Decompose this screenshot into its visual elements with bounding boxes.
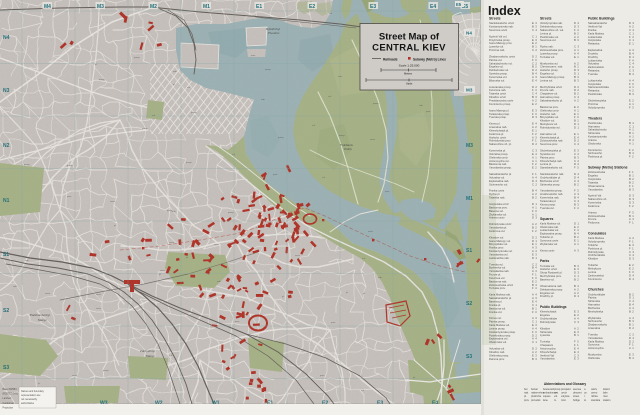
svg-text:Turivska prov.: Turivska prov. — [489, 286, 506, 290]
svg-text:B 1: B 1 — [532, 306, 537, 310]
svg-text:Sichnevoho: Sichnevoho — [588, 319, 603, 323]
svg-text:B 2: B 2 — [532, 196, 537, 200]
svg-text:E 3: E 3 — [574, 310, 579, 314]
svg-text:Mezhyhirska: Mezhyhirska — [588, 309, 604, 313]
svg-text:Stanislavskoho vul.: Stanislavskoho vul. — [540, 166, 563, 170]
svg-text:D 2: D 2 — [629, 339, 634, 343]
svg-text:Meters: Meters — [404, 72, 413, 76]
svg-text:F 1: F 1 — [629, 246, 634, 250]
svg-text:E 2: E 2 — [574, 313, 579, 317]
svg-text:E 1: E 1 — [532, 242, 537, 246]
svg-text:Naberezhne sh.: Naberezhne sh. — [588, 197, 607, 201]
svg-text:E 2: E 2 — [629, 263, 634, 267]
svg-text:Subway (Metro) Lines: Subway (Metro) Lines — [413, 58, 446, 62]
svg-text:Biloruska vul.: Biloruska vul. — [489, 78, 505, 82]
svg-text:F 3: F 3 — [532, 209, 537, 213]
svg-text:F 3: F 3 — [532, 58, 537, 62]
svg-text:m.: m. — [554, 399, 557, 402]
svg-text:A 2: A 2 — [574, 291, 579, 295]
svg-text:Kirova uzviz: Kirova uzviz — [540, 248, 555, 252]
svg-text:Olehivska prosp.: Olehivska prosp. — [489, 353, 509, 357]
svg-text:F 1: F 1 — [629, 221, 634, 225]
svg-text:Yaroslavska pl.: Yaroslavska pl. — [489, 226, 507, 230]
svg-text:nab.: nab. — [524, 392, 529, 395]
svg-text:Pushkinska: Pushkinska — [588, 92, 602, 96]
svg-text:Kostiantynivska nab.: Kostiantynivska nab. — [489, 25, 514, 29]
svg-text:C 3: C 3 — [629, 250, 634, 254]
svg-text:F 1: F 1 — [532, 139, 537, 143]
svg-text:Kikvidze nab.: Kikvidze nab. — [489, 350, 505, 354]
svg-text:Prorizna nab.: Prorizna nab. — [489, 48, 505, 52]
svg-text:A 3: A 3 — [629, 48, 634, 52]
svg-text:Rohnidynska: Rohnidynska — [588, 250, 604, 254]
svg-text:square: square — [543, 395, 551, 398]
svg-text:A 3: A 3 — [574, 248, 579, 252]
svg-text:A 1: A 1 — [629, 128, 634, 132]
svg-text:Yaroslavska prosp.: Yaroslavska prosp. — [489, 166, 512, 170]
svg-text:E 3: E 3 — [574, 357, 579, 361]
svg-text:Shchekavytska pl.: Shchekavytska pl. — [540, 149, 562, 153]
svg-text:Projection: Projection — [3, 406, 14, 409]
svg-text:D 2: D 2 — [629, 326, 634, 330]
svg-text:prospekt: prospekt — [561, 388, 571, 391]
svg-text:Patrisa prov.: Patrisa prov. — [540, 155, 555, 159]
svg-text:A 1: A 1 — [629, 141, 634, 145]
svg-text:Ivana Mazepy prov.: Ivana Mazepy prov. — [489, 41, 513, 45]
svg-text:richka: richka — [591, 395, 598, 398]
svg-text:D 3: D 3 — [532, 216, 537, 220]
svg-text:Dehtiarivska prosp.: Dehtiarivska prosp. — [540, 287, 563, 291]
svg-text:Staronavodnitska: Staronavodnitska — [588, 85, 609, 89]
svg-text:A 2: A 2 — [532, 192, 537, 196]
svg-text:Lysenka vul.: Lysenka vul. — [489, 45, 504, 49]
svg-text:D 3: D 3 — [629, 21, 634, 25]
svg-text:C 2: C 2 — [574, 152, 579, 156]
svg-text:street: street — [573, 395, 580, 398]
svg-text:Horkoho prosp.: Horkoho prosp. — [540, 68, 559, 72]
svg-text:E 2: E 2 — [532, 279, 537, 283]
svg-text:D 3: D 3 — [574, 68, 579, 72]
svg-text:A 1: A 1 — [532, 159, 537, 163]
svg-text:Antonovycha: Antonovycha — [540, 347, 556, 351]
svg-text:C 4: C 4 — [532, 92, 537, 96]
svg-text:Franka uzviz: Franka uzviz — [489, 189, 505, 193]
svg-text:Syretska vul.: Syretska vul. — [540, 152, 556, 156]
svg-text:A 4: A 4 — [629, 217, 634, 221]
svg-text:C 4: C 4 — [574, 95, 579, 99]
svg-text:D 4: D 4 — [574, 176, 579, 180]
svg-text:D 3: D 3 — [629, 194, 634, 198]
svg-text:C 4: C 4 — [629, 28, 634, 32]
svg-text:B 2: B 2 — [574, 31, 579, 35]
svg-text:E 4: E 4 — [532, 21, 537, 25]
svg-text:Subway (Metro) Stations: Subway (Metro) Stations — [588, 166, 628, 170]
svg-text:not necessarily: not necessarily — [21, 398, 38, 401]
svg-text:Ordzhonikidze: Ordzhonikidze — [588, 253, 606, 257]
svg-text:E 3: E 3 — [629, 243, 634, 247]
svg-text:Public Buildings: Public Buildings — [540, 305, 567, 309]
svg-text:Predslavynska uzviz: Predslavynska uzviz — [489, 99, 514, 103]
svg-text:A 2: A 2 — [629, 25, 634, 29]
svg-text:Turivska vul.: Turivska vul. — [540, 264, 555, 268]
svg-text:Olehivska uzviz: Olehivska uzviz — [540, 108, 559, 112]
svg-text:Ivana Mazepy vul.: Ivana Mazepy vul. — [489, 239, 511, 243]
svg-text:Dehtiarivska prosp.: Dehtiarivska prosp. — [540, 25, 563, 29]
svg-text:Khreshchatyk: Khreshchatyk — [540, 310, 557, 314]
svg-text:Instytutska: Instytutska — [588, 82, 601, 86]
svg-text:D 2: D 2 — [574, 88, 579, 92]
svg-text:Railroads: Railroads — [383, 58, 398, 62]
svg-text:D 2: D 2 — [629, 138, 634, 142]
svg-text:Pushkinska vul.: Pushkinska vul. — [540, 35, 559, 39]
svg-text:B 1: B 1 — [574, 333, 579, 337]
svg-text:F 3: F 3 — [629, 270, 634, 274]
svg-text:Liuteranska prosp.: Liuteranska prosp. — [489, 85, 511, 89]
svg-text:Karla Marksa vul.: Karla Marksa vul. — [540, 221, 561, 225]
svg-text:vul.: vul. — [554, 395, 558, 398]
svg-text:B 3: B 3 — [629, 187, 634, 191]
svg-text:B 3: B 3 — [574, 264, 579, 268]
svg-text:Baseina vul.: Baseina vul. — [540, 278, 555, 282]
svg-text:Verkhnii Val: Verkhnii Val — [588, 25, 602, 29]
svg-text:Syretska prosp.: Syretska prosp. — [489, 72, 508, 76]
svg-text:C 2: C 2 — [532, 61, 537, 65]
svg-text:Zankovetskoi: Zankovetskoi — [588, 273, 604, 277]
svg-text:B 3: B 3 — [532, 25, 537, 29]
svg-text:C 3: C 3 — [532, 149, 537, 153]
svg-text:A 1: A 1 — [629, 102, 634, 106]
svg-text:Zolotoustivska prov.: Zolotoustivska prov. — [540, 48, 564, 52]
svg-text:Mezhyhirska prov.: Mezhyhirska prov. — [540, 274, 562, 278]
svg-text:E 3: E 3 — [532, 108, 537, 112]
svg-text:Turivska vul.: Turivska vul. — [540, 55, 555, 59]
svg-text:A 3: A 3 — [532, 75, 537, 79]
svg-text:D 1: D 1 — [629, 296, 634, 300]
svg-text:C 4: C 4 — [574, 142, 579, 146]
svg-text:C 1: C 1 — [532, 34, 537, 38]
svg-text:D 2: D 2 — [574, 85, 579, 89]
svg-text:B 4: B 4 — [532, 72, 537, 76]
svg-text:A 4: A 4 — [532, 337, 537, 341]
svg-text:Lysenka prosp.: Lysenka prosp. — [540, 52, 558, 56]
svg-text:Dehtiarivska vul.: Dehtiarivska vul. — [489, 68, 509, 72]
svg-text:Lysenka: Lysenka — [540, 333, 550, 337]
svg-text:F 3: F 3 — [629, 65, 634, 69]
svg-text:Olehivska uzviz: Olehivska uzviz — [489, 155, 508, 159]
svg-text:E 4: E 4 — [574, 350, 579, 354]
svg-text:A 2: A 2 — [532, 350, 537, 354]
svg-text:uzviz: uzviz — [561, 392, 567, 395]
svg-text:Yards: Yards — [406, 82, 413, 86]
svg-text:B 3: B 3 — [574, 75, 579, 79]
svg-text:Lenina pl.: Lenina pl. — [540, 31, 552, 35]
svg-text:A 1: A 1 — [629, 85, 634, 89]
svg-text:A 1: A 1 — [629, 135, 634, 139]
svg-text:E 2: E 2 — [532, 41, 537, 45]
svg-text:bridge: bridge — [573, 399, 581, 402]
svg-text:Tverska: Tverska — [588, 333, 598, 337]
svg-text:F 4: F 4 — [574, 206, 579, 210]
svg-text:Zolotoustivska: Zolotoustivska — [588, 214, 606, 218]
svg-text:Kurenivska vul.: Kurenivska vul. — [489, 75, 507, 79]
svg-text:Lukianivska vul.: Lukianivska vul. — [540, 228, 559, 232]
svg-text:Chapaieva: Chapaieva — [540, 343, 553, 347]
svg-text:Saksahanskoho: Saksahanskoho — [588, 21, 608, 25]
svg-text:F 4: F 4 — [629, 35, 634, 39]
svg-text:F 4: F 4 — [629, 58, 634, 62]
svg-text:B 4: B 4 — [629, 151, 634, 155]
svg-text:B 1: B 1 — [574, 65, 579, 69]
svg-text:A 4: A 4 — [574, 52, 579, 56]
svg-text:C 4: C 4 — [629, 299, 634, 303]
svg-text:Sichnevoho vul.: Sichnevoho vul. — [489, 182, 508, 186]
svg-text:Bastionna vul.: Bastionna vul. — [489, 306, 506, 310]
svg-text:A 2: A 2 — [532, 125, 537, 129]
svg-text:E 3: E 3 — [532, 323, 537, 327]
svg-text:A 4: A 4 — [532, 249, 537, 253]
svg-text:Lukianivska: Lukianivska — [588, 78, 603, 82]
svg-text:Zhadanovskoho: Zhadanovskoho — [588, 323, 608, 327]
svg-text:Khreshchatyk pl.: Khreshchatyk pl. — [540, 135, 560, 139]
svg-text:Liebknekhta nab.: Liebknekhta nab. — [489, 256, 510, 260]
svg-text:Bozhenka uzviz: Bozhenka uzviz — [540, 179, 559, 183]
svg-text:F 3: F 3 — [532, 276, 537, 280]
svg-text:Baseina pl.: Baseina pl. — [489, 300, 503, 304]
svg-text:B 3: B 3 — [574, 202, 579, 206]
svg-text:Sahaidachnoho vul.: Sahaidachnoho vul. — [489, 61, 513, 65]
svg-text:Abbreviations and Glossary: Abbreviations and Glossary — [544, 382, 587, 386]
svg-text:Kirova prosp.: Kirova prosp. — [540, 202, 556, 206]
svg-text:Streets: Streets — [540, 17, 552, 21]
svg-text:A 4: A 4 — [532, 176, 537, 180]
svg-text:CENTRAL KIEV: CENTRAL KIEV — [372, 43, 446, 54]
svg-text:C 4: C 4 — [629, 253, 634, 257]
svg-text:Frunze nab.: Frunze nab. — [540, 88, 555, 92]
svg-text:Pushkinska prosp.: Pushkinska prosp. — [489, 333, 511, 337]
svg-text:vulytsia: vulytsia — [561, 395, 570, 398]
svg-text:Kominternu: Kominternu — [588, 277, 602, 281]
svg-text:Kikvidze vul.: Kikvidze vul. — [489, 235, 504, 239]
svg-text:D 2: D 2 — [532, 235, 537, 239]
svg-text:Stanislavskoho uzviz: Stanislavskoho uzviz — [489, 21, 515, 25]
svg-text:Pushkinska: Pushkinska — [588, 121, 602, 125]
svg-text:Parks: Parks — [540, 259, 549, 263]
svg-text:Suvorova uzviz: Suvorova uzviz — [540, 239, 559, 243]
svg-text:A 2: A 2 — [532, 222, 537, 226]
svg-text:Consulates: Consulates — [588, 232, 606, 236]
svg-text:Franka pl.: Franka pl. — [489, 303, 501, 307]
svg-text:Public Buildings: Public Buildings — [588, 17, 615, 21]
svg-text:D 4: D 4 — [574, 294, 579, 298]
svg-text:C 1: C 1 — [629, 38, 634, 42]
svg-text:F 1: F 1 — [532, 172, 537, 176]
svg-text:Harmatna: Harmatna — [588, 303, 600, 307]
svg-text:D 4: D 4 — [629, 273, 634, 277]
svg-text:E 3: E 3 — [532, 353, 537, 357]
svg-text:B 2: B 2 — [532, 65, 537, 69]
svg-text:C 2: C 2 — [574, 159, 579, 163]
svg-text:E 2: E 2 — [629, 99, 634, 103]
svg-text:F 4: F 4 — [574, 228, 579, 232]
svg-text:D 1: D 1 — [574, 72, 579, 76]
svg-text:Harmatna prosp.: Harmatna prosp. — [540, 95, 560, 99]
svg-text:Ivana Mazepy pl.: Ivana Mazepy pl. — [489, 108, 510, 112]
svg-text:F 2: F 2 — [629, 155, 634, 159]
svg-text:Moskovska: Moskovska — [588, 353, 602, 357]
svg-text:B 2: B 2 — [574, 235, 579, 239]
svg-text:Observatorna nab.: Observatorna nab. — [540, 284, 563, 288]
svg-text:E 3: E 3 — [574, 149, 579, 153]
svg-text:Karla Marksa: Karla Marksa — [588, 31, 604, 35]
svg-text:Vokzalna vul.: Vokzalna vul. — [489, 347, 505, 351]
svg-text:lane: lane — [543, 399, 548, 402]
svg-text:E 3: E 3 — [532, 38, 537, 42]
svg-text:Kutuzova nab.: Kutuzova nab. — [489, 88, 506, 92]
svg-text:A 2: A 2 — [629, 89, 634, 93]
svg-text:A 4: A 4 — [629, 78, 634, 82]
svg-text:Stanislavskoho nab.: Stanislavskoho nab. — [540, 172, 564, 176]
svg-text:Ryzka nab.: Ryzka nab. — [540, 45, 554, 49]
svg-text:F 4: F 4 — [532, 286, 537, 290]
svg-text:B 2: B 2 — [574, 92, 579, 96]
svg-text:D 4: D 4 — [629, 336, 634, 340]
svg-text:o.: o. — [584, 388, 586, 391]
svg-text:A 1: A 1 — [574, 48, 579, 52]
svg-text:Instytutska uzviz: Instytutska uzviz — [489, 202, 509, 206]
svg-text:Turivska: Turivska — [540, 340, 551, 344]
svg-text:C 4: C 4 — [629, 62, 634, 66]
svg-text:Arsenalna nab.: Arsenalna nab. — [489, 125, 507, 129]
svg-text:Tverska vul.: Tverska vul. — [489, 262, 504, 266]
svg-text:F 3: F 3 — [532, 330, 537, 334]
svg-text:ozero: ozero — [591, 392, 598, 395]
svg-text:A 4: A 4 — [532, 293, 537, 297]
svg-text:D 2: D 2 — [574, 162, 579, 166]
svg-text:B 2: B 2 — [629, 309, 634, 313]
svg-text:Frunze: Frunze — [588, 217, 597, 221]
svg-text:Olehivska: Olehivska — [588, 356, 600, 360]
svg-text:B 3: B 3 — [532, 357, 537, 361]
svg-text:lake: lake — [603, 392, 608, 395]
svg-text:D 3: D 3 — [629, 201, 634, 205]
svg-text:Kurenivska: Kurenivska — [588, 201, 602, 205]
svg-text:Engelsa: Engelsa — [588, 174, 598, 178]
svg-text:Engelsa vul.: Engelsa vul. — [540, 72, 555, 76]
svg-text:Vokzalna vul.: Vokzalna vul. — [489, 176, 505, 180]
svg-text:Kurenivska nab.: Kurenivska nab. — [540, 196, 560, 200]
svg-text:C 1: C 1 — [532, 303, 537, 307]
svg-text:Kurenivska pl.: Kurenivska pl. — [489, 149, 506, 153]
svg-text:F 3: F 3 — [574, 189, 579, 193]
svg-text:F 3: F 3 — [629, 210, 634, 214]
svg-text:Shota Rustaveli pl.: Shota Rustaveli pl. — [540, 271, 563, 275]
svg-text:Tolstoho: Tolstoho — [588, 243, 599, 247]
svg-text:Harmatna vul.: Harmatna vul. — [540, 132, 557, 136]
svg-text:C 3: C 3 — [574, 192, 579, 196]
svg-text:Tverska prosp.: Tverska prosp. — [489, 115, 507, 119]
svg-text:F 3: F 3 — [532, 112, 537, 116]
svg-text:Bastionna prov.: Bastionna prov. — [489, 205, 508, 209]
svg-text:F 4: F 4 — [574, 28, 579, 32]
svg-text:Kikvidze vul.: Kikvidze vul. — [540, 119, 555, 123]
svg-text:E 1: E 1 — [532, 128, 537, 132]
svg-text:Ordzhonikidze: Ordzhonikidze — [588, 292, 606, 296]
svg-text:Lenina prosp.: Lenina prosp. — [489, 326, 506, 330]
svg-text:Names and boundary: Names and boundary — [21, 390, 45, 393]
svg-text:A 3: A 3 — [532, 269, 537, 273]
svg-text:Stritenska: Stritenska — [588, 131, 600, 135]
svg-text:C 4: C 4 — [574, 199, 579, 203]
svg-text:Horkoho uzviz: Horkoho uzviz — [540, 267, 558, 271]
svg-text:D 2: D 2 — [532, 142, 537, 146]
svg-text:F 2: F 2 — [629, 148, 634, 152]
svg-text:Karla Marksa: Karla Marksa — [588, 339, 604, 343]
svg-text:Artema: Artema — [588, 210, 597, 214]
svg-text:B 3: B 3 — [629, 319, 634, 323]
svg-text:Arsenalna: Arsenalna — [588, 326, 601, 330]
svg-text:Yaroslavska: Yaroslavska — [588, 336, 603, 340]
svg-text:Lenina: Lenina — [588, 270, 597, 274]
svg-text:F 3: F 3 — [574, 166, 579, 170]
svg-text:A 2: A 2 — [574, 61, 579, 65]
svg-text:F 3: F 3 — [629, 82, 634, 86]
svg-text:descent: descent — [573, 392, 582, 395]
svg-text:E 1: E 1 — [574, 132, 579, 136]
svg-text:D 1: D 1 — [532, 239, 537, 243]
svg-text:Instytutska: Instytutska — [588, 177, 601, 181]
svg-text:B 1: B 1 — [532, 45, 537, 49]
svg-text:Zhylianska: Zhylianska — [588, 316, 601, 320]
svg-text:D 2: D 2 — [532, 55, 537, 59]
svg-text:D 3: D 3 — [574, 271, 579, 275]
svg-text:C 2: C 2 — [532, 48, 537, 52]
svg-text:B 3: B 3 — [629, 92, 634, 96]
svg-text:Obolonska vul.: Obolonska vul. — [489, 340, 507, 344]
svg-text:provulok: provulok — [531, 399, 541, 402]
svg-text:Kominternu: Kominternu — [588, 148, 602, 152]
svg-text:pl.: pl. — [524, 395, 527, 398]
svg-text:F 1: F 1 — [629, 170, 634, 174]
svg-text:E 3: E 3 — [574, 267, 579, 271]
svg-text:Kikvidze: Kikvidze — [540, 326, 551, 330]
svg-text:Druzhby: Druzhby — [588, 52, 599, 56]
svg-text:Yaroslavska: Yaroslavska — [540, 357, 555, 361]
svg-text:Observatorna: Observatorna — [588, 184, 605, 188]
svg-text:Suvorova prov.: Suvorova prov. — [540, 142, 558, 146]
svg-text:Esplanadna: Esplanadna — [588, 48, 603, 52]
svg-text:Ryzka pl.: Ryzka pl. — [489, 192, 500, 196]
svg-text:A 1: A 1 — [629, 346, 634, 350]
svg-text:Tarasivska prosp.: Tarasivska prosp. — [489, 112, 510, 116]
svg-text:E 2: E 2 — [532, 102, 537, 106]
svg-text:Vokzalna prosp.: Vokzalna prosp. — [489, 152, 508, 156]
svg-text:F 1: F 1 — [629, 240, 634, 244]
svg-text:Poshtova pl.: Poshtova pl. — [588, 246, 603, 250]
svg-text:Reitarska: Reitarska — [588, 69, 600, 73]
svg-text:prov.: prov. — [524, 399, 530, 402]
svg-text:Stritenska: Stritenska — [588, 299, 600, 303]
svg-text:Naberezhne sh. pl.: Naberezhne sh. pl. — [489, 142, 512, 146]
svg-text:boulevard: boulevard — [543, 388, 555, 391]
svg-text:D 2: D 2 — [532, 85, 537, 89]
svg-text:B 4: B 4 — [532, 283, 537, 287]
svg-text:B 4: B 4 — [532, 266, 537, 270]
svg-text:F 3: F 3 — [574, 115, 579, 119]
svg-text:F 1: F 1 — [574, 343, 579, 347]
svg-text:F 1: F 1 — [629, 184, 634, 188]
svg-text:D 3: D 3 — [629, 197, 634, 201]
svg-text:Shchekavytska: Shchekavytska — [588, 99, 607, 103]
